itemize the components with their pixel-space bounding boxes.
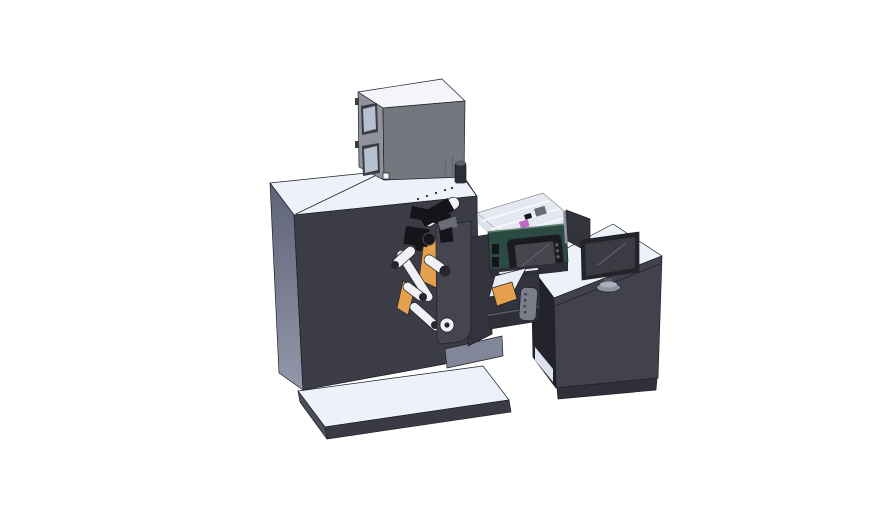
engine-button-upper <box>492 244 499 254</box>
mechanism-gear <box>423 233 435 245</box>
bolt-dot <box>435 192 437 194</box>
filter-cylinder-cap <box>455 160 466 165</box>
roller-end-cap <box>419 293 427 301</box>
monitor-stand-base-top <box>600 282 617 288</box>
bolt-dot <box>417 198 419 200</box>
hand-pendant <box>519 287 538 321</box>
pendant-body <box>519 287 538 321</box>
mechanism-gear-small <box>415 243 423 251</box>
bolt-dot <box>426 195 428 197</box>
mandrel-end-cap <box>440 266 451 277</box>
bolt-dot <box>444 189 446 191</box>
hinge-upper <box>355 98 359 105</box>
lower-cabinet-face <box>468 234 492 346</box>
rewind-spindle-hub <box>444 322 449 327</box>
cabinet-window-upper <box>363 106 376 132</box>
control-cabinet <box>355 79 466 183</box>
roller-end-cap <box>391 261 399 269</box>
filter-cylinder <box>455 163 466 183</box>
bolt-dot <box>451 187 453 189</box>
hinge-lower <box>355 141 359 148</box>
cabinet-window-lower <box>364 146 378 173</box>
cad-render-canvas: Isometric CAD rendering of a compact lab… <box>0 0 888 522</box>
machine-scene: Isometric CAD rendering of a compact lab… <box>0 0 888 522</box>
cabinet-label-plate <box>383 173 389 179</box>
engine-button-lower <box>492 257 499 267</box>
